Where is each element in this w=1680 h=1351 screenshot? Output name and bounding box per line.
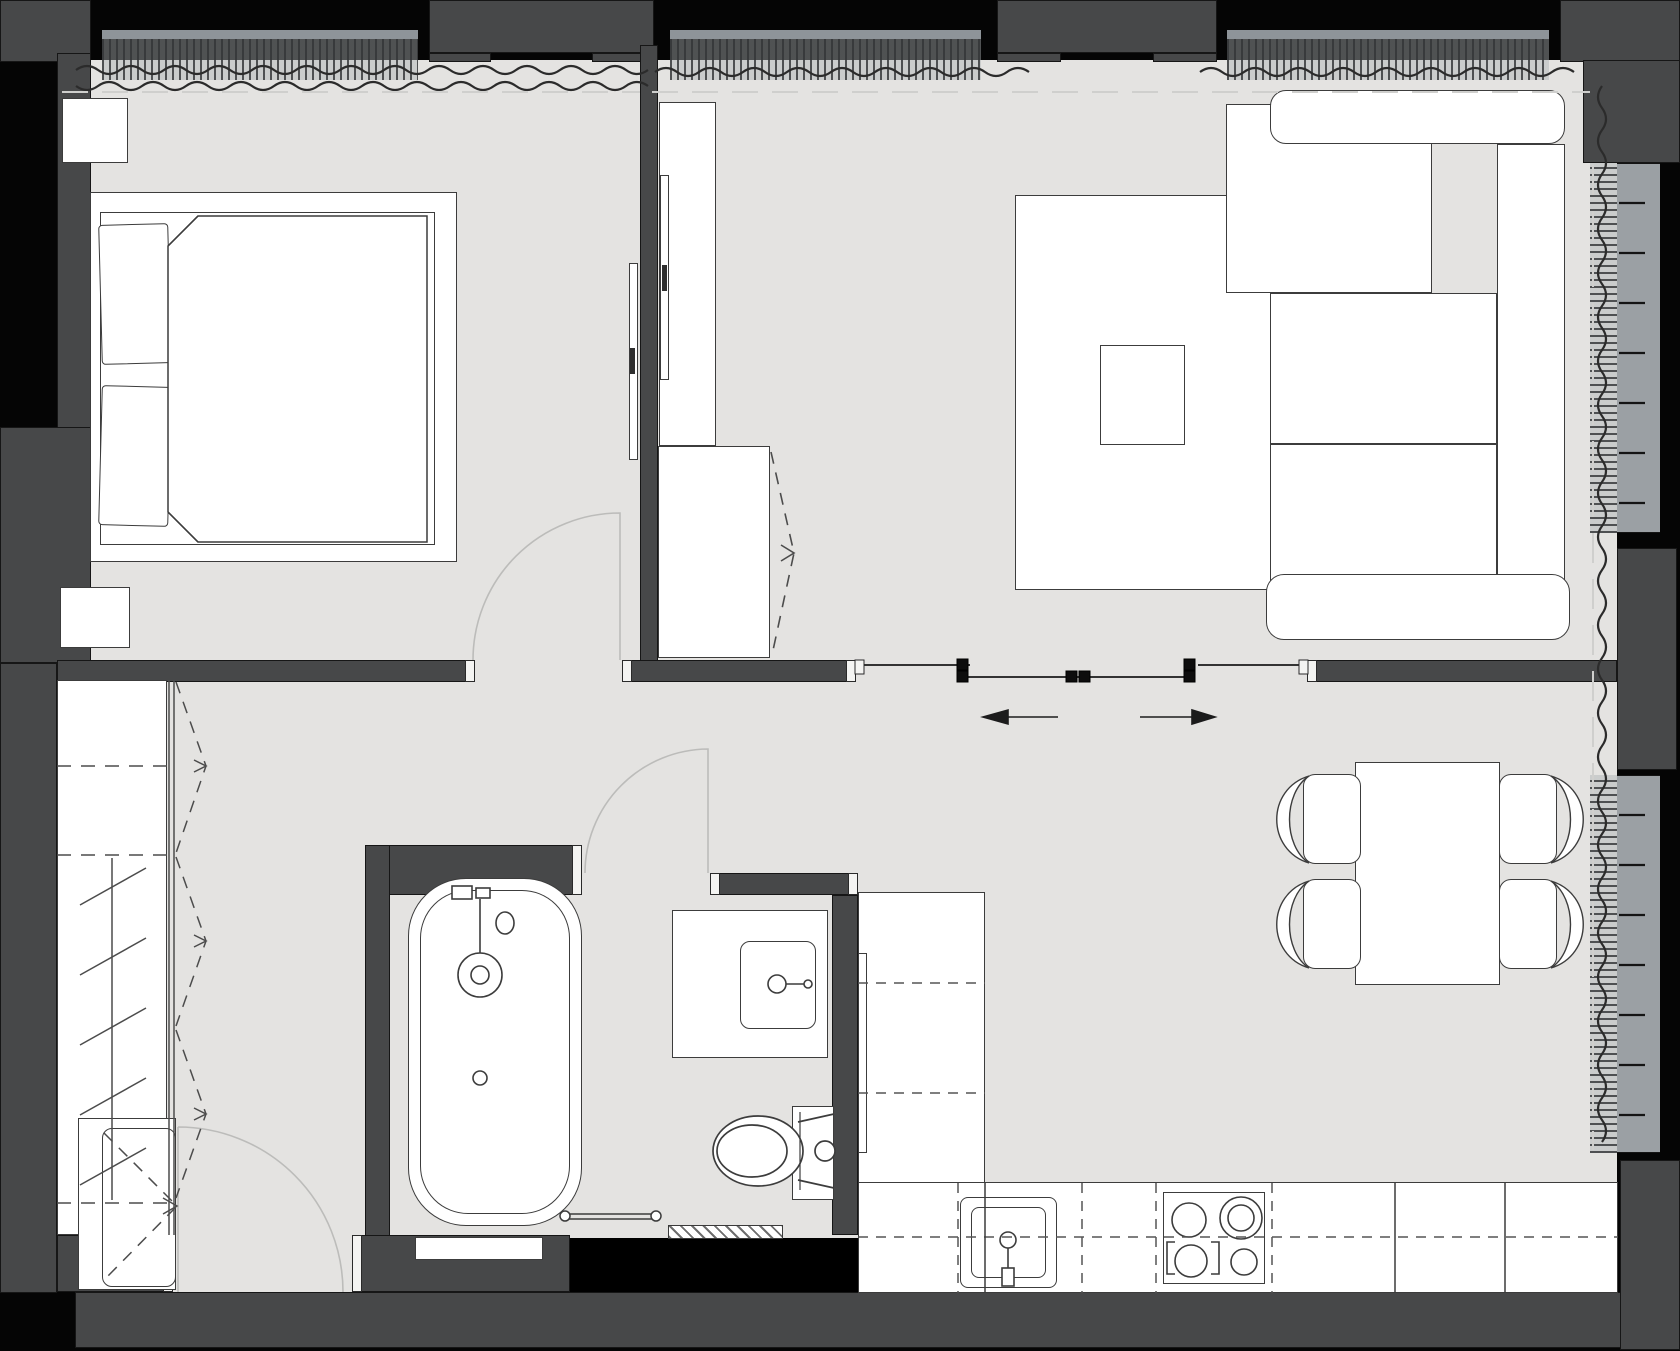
chair-seat-3 <box>1499 774 1557 864</box>
wall-left-lower <box>0 663 57 1293</box>
chair-seat-1 <box>1303 774 1361 864</box>
sofa-seat-2 <box>1270 444 1497 594</box>
wall-corner-topright <box>1583 60 1680 163</box>
tv-bedroom <box>629 263 638 460</box>
coffee-table <box>1100 345 1185 445</box>
wall-pier-3-foot-r <box>1153 53 1217 62</box>
chair-seat-2 <box>1303 879 1361 969</box>
wall-pier-3 <box>997 0 1217 53</box>
wall-bathroom-left <box>365 845 390 1260</box>
wall-south-living-right <box>1307 660 1617 682</box>
jamb-bathroom-right <box>710 873 720 895</box>
jamb-entrance-right <box>352 1235 362 1292</box>
wall-south-hall <box>622 660 856 682</box>
floor-plan <box>0 0 1680 1351</box>
jamb-bathroom-end <box>848 873 858 895</box>
cooktop <box>1163 1192 1265 1284</box>
wall-pier-2 <box>429 0 654 53</box>
bathtub-inner <box>420 890 570 1214</box>
wall-bathroom-right <box>832 895 858 1235</box>
sofa-armrest-bottom <box>1266 574 1570 640</box>
wall-pillar-right <box>1617 548 1677 770</box>
wall-south-bedroom <box>57 660 475 682</box>
vent-grille <box>668 1225 783 1239</box>
hall-cabinet <box>658 446 770 658</box>
outside-void-recess <box>570 1238 860 1292</box>
pillow-top <box>98 223 172 365</box>
pillow-bottom <box>98 385 172 527</box>
sofa-back-right <box>1497 144 1565 594</box>
jamb-living-right <box>1307 660 1317 682</box>
nightstand-top <box>62 98 128 163</box>
radiator-living-window-left <box>670 30 981 80</box>
sofa-seat-1 <box>1270 293 1497 444</box>
jamb-bedroom-left <box>465 660 475 682</box>
dining-table <box>1355 762 1500 985</box>
jamb-bedroom-right <box>622 660 632 682</box>
jamb-hall-right <box>846 660 856 682</box>
jamb-bathroom-left <box>572 845 582 895</box>
radiator-side-window-lower <box>1590 775 1617 1153</box>
wall-bedroom-living-divider <box>640 45 658 663</box>
wall-pier-2-foot-l <box>429 53 491 62</box>
radiator-side-window-upper <box>1590 163 1617 533</box>
chair-seat-4 <box>1499 879 1557 969</box>
wall-pier-topright <box>1560 0 1680 62</box>
radiator-bedroom-window <box>102 30 418 80</box>
wall-bottom-right-corner <box>1620 1160 1680 1350</box>
entry-cabinet-inner <box>102 1128 176 1287</box>
toilet-tank <box>792 1106 834 1200</box>
kitchen-sink-basin <box>971 1207 1046 1278</box>
sill-side-window-lower <box>1617 775 1660 1153</box>
wall-bottom-band <box>75 1292 1680 1348</box>
nightstand-bottom <box>60 587 130 648</box>
kitchen-counter-vertical <box>858 892 985 1183</box>
bath-niche <box>415 1237 543 1260</box>
tv-living <box>660 175 669 380</box>
sill-side-window-upper <box>1617 163 1660 533</box>
radiator-living-window-right <box>1227 30 1549 80</box>
tall-panel-door <box>858 953 867 1153</box>
sofa-back-top <box>1270 90 1565 144</box>
wall-bathroom-top-right <box>710 873 858 895</box>
wall-pier-3-foot-l <box>997 53 1061 62</box>
washbasin <box>740 941 816 1029</box>
